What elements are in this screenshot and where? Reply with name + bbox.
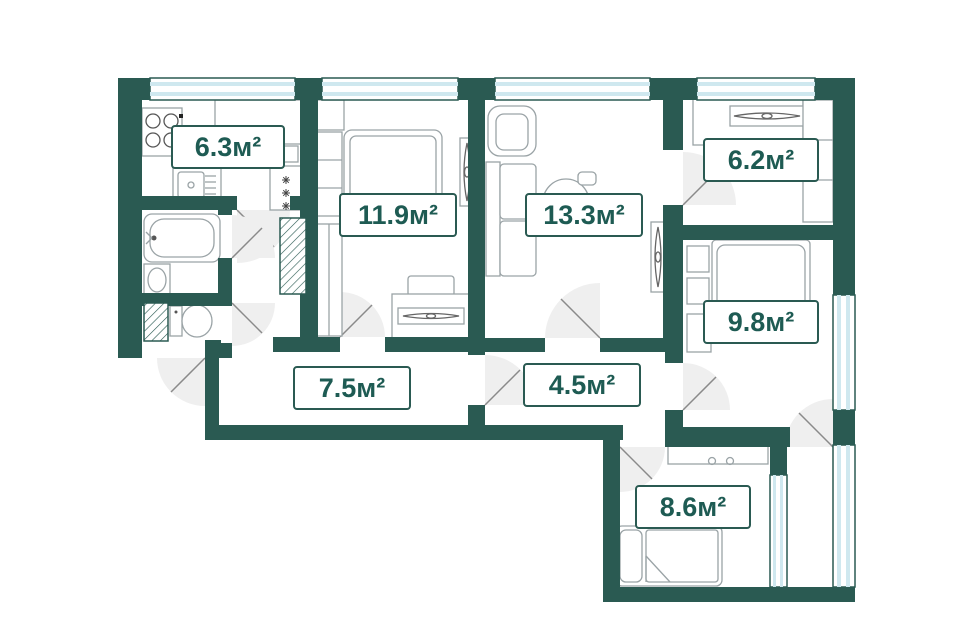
livingroom-window xyxy=(495,78,650,100)
armchair xyxy=(488,106,536,156)
kitchen-area-text: 6.3м² xyxy=(195,132,262,162)
bedroom1-door xyxy=(340,292,385,337)
bedroom2-door xyxy=(683,363,730,410)
bedroom3-window xyxy=(770,475,787,587)
livingroom-area-text: 13.3м² xyxy=(543,200,625,230)
livingroom-radiator xyxy=(651,222,665,292)
label-bedroom2: 9.8м² xyxy=(704,301,818,343)
kitchen-window xyxy=(150,78,295,100)
bathtub xyxy=(144,214,220,262)
label-corridor: 4.5м² xyxy=(524,364,640,406)
bedroom1-area-text: 11.9м² xyxy=(358,200,438,230)
label-livingroom: 13.3м² xyxy=(526,194,642,236)
bedroom2-window xyxy=(833,295,855,410)
balcony-glazing xyxy=(833,445,855,587)
floor-plan: 6.3м² 11.9м² 13.3м² 6.2м² 9.8м² 7.5м² 4.… xyxy=(0,0,960,640)
bathroom-sink xyxy=(144,264,170,296)
toilet-door xyxy=(232,303,275,346)
cabinet-radiator xyxy=(730,106,804,126)
ventilation-shaft-hall xyxy=(280,218,306,294)
bedroom1-dresser xyxy=(392,276,470,338)
label-kitchen: 6.3м² xyxy=(172,126,284,168)
livingroom-door xyxy=(545,283,600,338)
bedroom1-wardrobe xyxy=(316,224,342,336)
balcony-door xyxy=(785,399,833,447)
label-bedroom3: 8.6м² xyxy=(636,486,750,528)
bedroom3-area-text: 8.6м² xyxy=(660,492,727,522)
hallway-area-text: 7.5м² xyxy=(319,373,386,403)
bedroom3-bed xyxy=(616,526,722,586)
bedroom1-window xyxy=(322,78,458,100)
bedroom2-area-text: 9.8м² xyxy=(728,307,795,337)
entrance-door xyxy=(157,358,205,406)
floor-plan-page: 6.3м² 11.9м² 13.3м² 6.2м² 9.8м² 7.5м² 4.… xyxy=(0,0,960,640)
bedroom1-cabinet xyxy=(314,100,344,130)
ventilation-shaft-toilet xyxy=(144,303,168,341)
cabinet-area-text: 6.2м² xyxy=(728,145,795,175)
cabinet-window xyxy=(697,78,815,100)
label-cabinet: 6.2м² xyxy=(704,139,818,181)
corridor-area-text: 4.5м² xyxy=(549,370,616,400)
wc-toilet xyxy=(170,305,212,337)
label-bedroom1: 11.9м² xyxy=(340,194,456,236)
label-hallway: 7.5м² xyxy=(294,367,410,409)
